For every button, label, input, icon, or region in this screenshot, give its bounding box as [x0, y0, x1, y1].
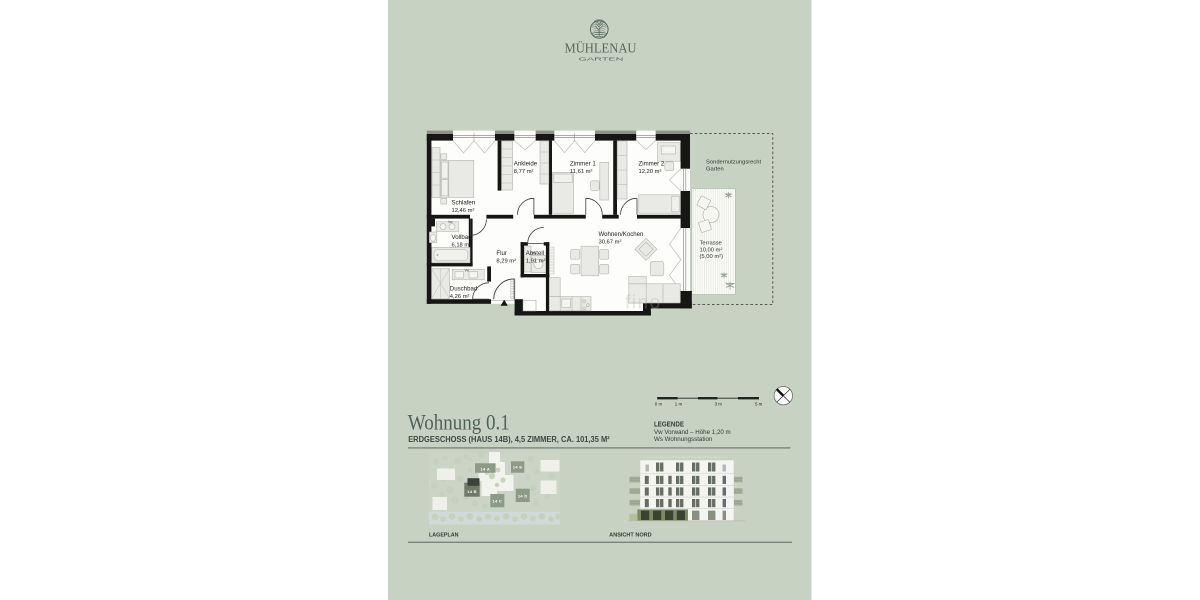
svg-text:5 m: 5 m — [755, 402, 763, 407]
svg-text:8,29 m²: 8,29 m² — [496, 259, 516, 265]
svg-text:Zimmer 2: Zimmer 2 — [639, 161, 665, 168]
svg-text:Ws: Ws — [532, 251, 537, 255]
svg-text:Duschbad: Duschbad — [450, 286, 477, 293]
svg-text:14 E: 14 E — [513, 465, 522, 470]
svg-text:14 A: 14 A — [481, 466, 491, 471]
svg-text:Sondernutzungsrecht: Sondernutzungsrecht — [706, 160, 761, 166]
svg-text:Zimmer 1: Zimmer 1 — [570, 161, 596, 168]
svg-text:(5,00 m²): (5,00 m²) — [700, 254, 724, 260]
svg-text:6,18 m²: 6,18 m² — [452, 243, 472, 249]
svg-text:3 m: 3 m — [715, 402, 723, 407]
svg-text:12,46 m²: 12,46 m² — [452, 208, 475, 214]
svg-text:Ankleide: Ankleide — [514, 161, 538, 168]
svg-text:fino: fino — [625, 293, 662, 314]
svg-text:MÜHLENAU: MÜHLENAU — [565, 41, 637, 56]
svg-text:12,20 m²: 12,20 m² — [639, 169, 662, 175]
svg-text:14 B: 14 B — [467, 489, 477, 494]
svg-text:30,67 m²: 30,67 m² — [599, 240, 622, 246]
svg-text:14 D: 14 D — [518, 493, 528, 498]
svg-text:1 m: 1 m — [675, 402, 683, 407]
svg-text:Wohnen/Kochen: Wohnen/Kochen — [599, 231, 644, 238]
svg-text:8,77 m²: 8,77 m² — [514, 169, 534, 175]
svg-text:LAGEPLAN: LAGEPLAN — [429, 532, 459, 538]
svg-text:Flur: Flur — [496, 250, 507, 257]
svg-text:4,26 m²: 4,26 m² — [450, 294, 470, 300]
svg-text:Schlafen: Schlafen — [452, 200, 476, 207]
svg-text:11,61 m²: 11,61 m² — [570, 169, 593, 175]
svg-text:10,00 m²: 10,00 m² — [700, 247, 723, 253]
svg-text:14 C: 14 C — [492, 499, 502, 504]
svg-text:Vw: Vw — [448, 220, 453, 224]
svg-text:GARTEN: GARTEN — [579, 57, 625, 63]
svg-text:Terrasse: Terrasse — [700, 241, 722, 247]
svg-text:Vw: Vw — [465, 269, 470, 273]
svg-text:LEGENDE: LEGENDE — [654, 421, 684, 428]
svg-text:ANSICHT NORD: ANSICHT NORD — [609, 532, 652, 538]
svg-text:1,91 m²: 1,91 m² — [526, 259, 546, 265]
svg-text:Garten: Garten — [706, 166, 724, 172]
svg-text:Wohnung 0.1: Wohnung 0.1 — [408, 410, 510, 435]
svg-text:Ws Wohnungsstation: Ws Wohnungsstation — [654, 436, 713, 443]
svg-text:ERDGESCHOSS (HAUS 14B), 4,5 ZI: ERDGESCHOSS (HAUS 14B), 4,5 ZIMMER, CA. … — [408, 435, 610, 444]
svg-text:0 m: 0 m — [655, 402, 663, 407]
svg-text:Vollbad: Vollbad — [452, 234, 472, 241]
